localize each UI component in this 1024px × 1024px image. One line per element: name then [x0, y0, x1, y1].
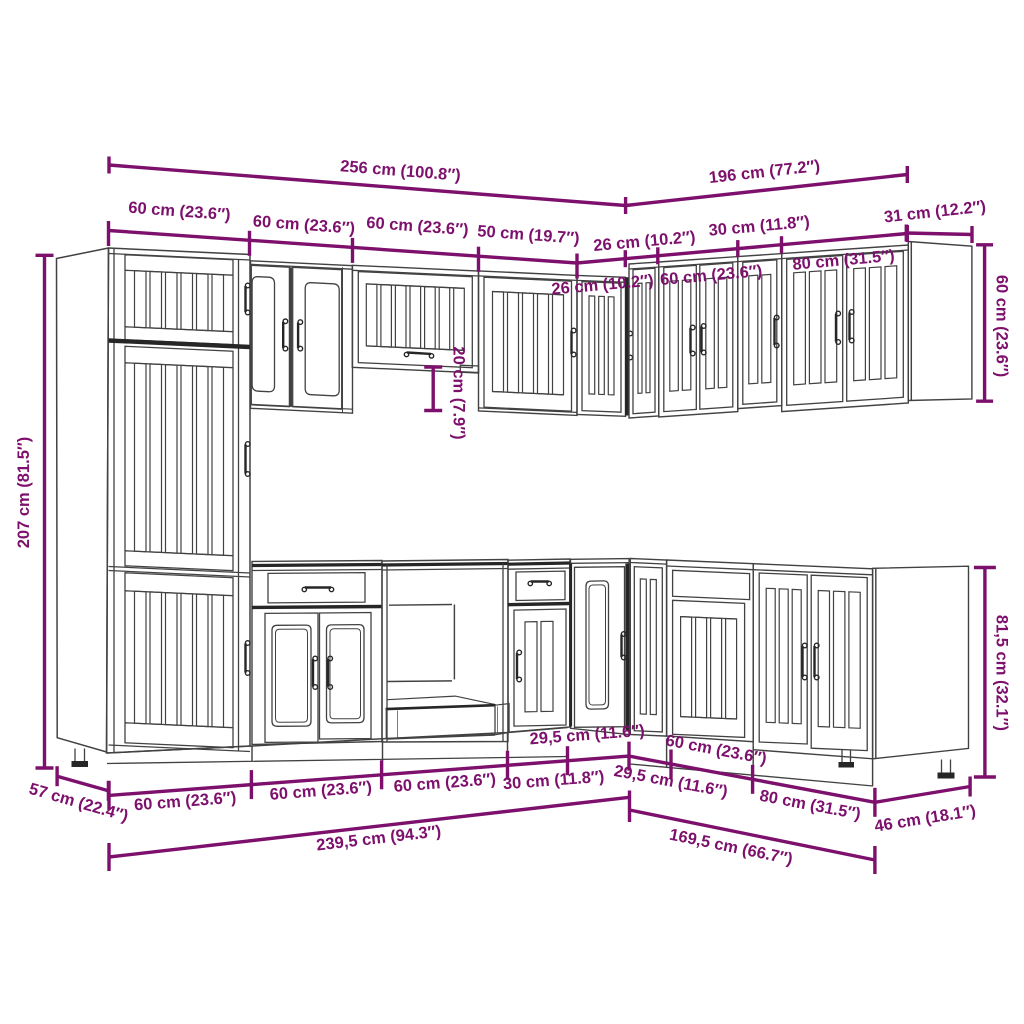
svg-text:207 cm (81.5″): 207 cm (81.5″) [15, 437, 33, 549]
svg-text:60 cm (23.6″): 60 cm (23.6″) [993, 275, 1011, 377]
svg-text:20 cm (7.9″): 20 cm (7.9″) [450, 346, 468, 439]
svg-text:81,5 cm (32.1″): 81,5 cm (32.1″) [993, 615, 1011, 731]
